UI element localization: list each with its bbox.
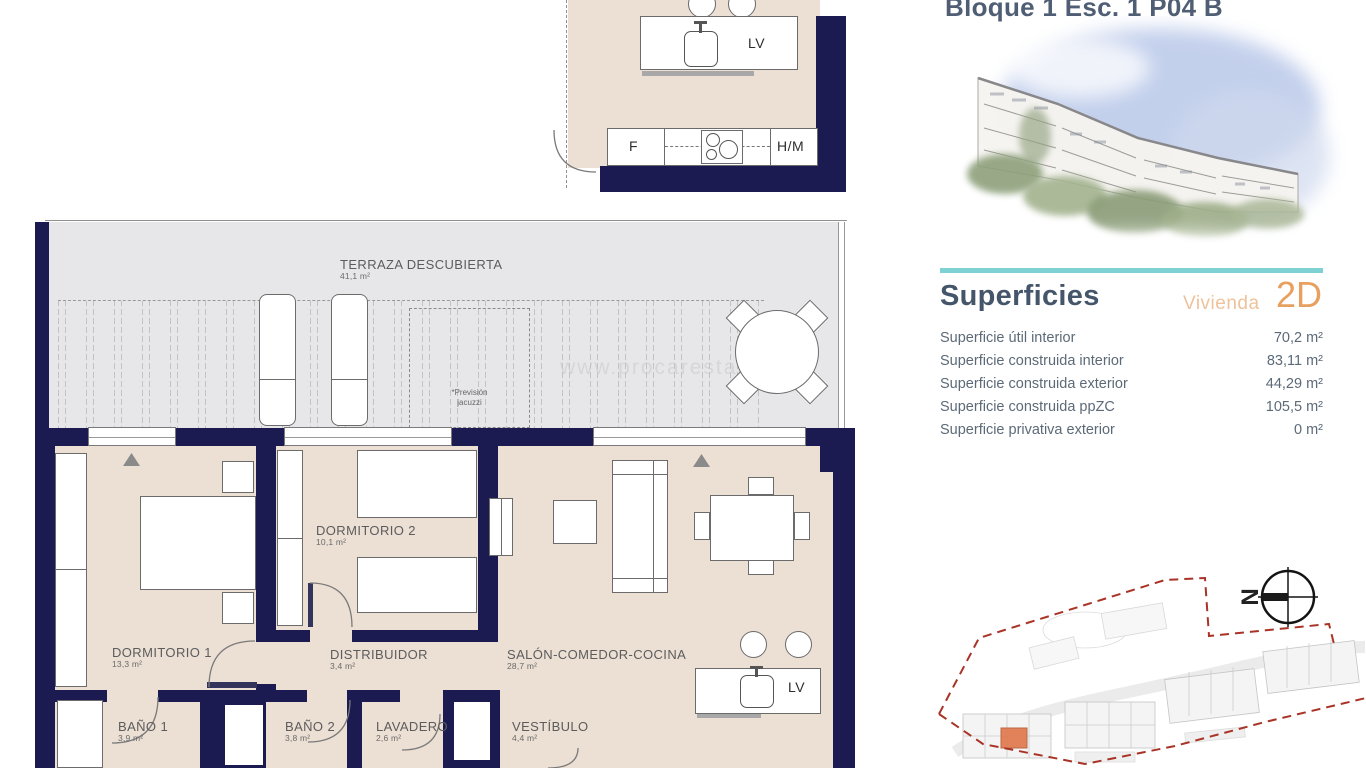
superficie-label: Superficie útil interior <box>940 330 1075 353</box>
door-arc-dormitorio1 <box>209 641 255 687</box>
room-name: DORMITORIO 2 <box>316 523 416 538</box>
room-name: LAVADERO <box>376 719 448 734</box>
room-area: 3,4 m² <box>330 662 428 671</box>
superficies-row: Superficie construida ppZC 105,5 m² <box>940 399 1323 422</box>
unit-type: 2D <box>1276 274 1322 316</box>
room-name: SALÓN-COMEDOR-COCINA <box>507 647 686 662</box>
superficies-row: Superficie privativa exterior 0 m² <box>940 422 1323 445</box>
teal-divider <box>940 268 1323 273</box>
room-name: DISTRIBUIDOR <box>330 647 428 662</box>
unit-type-label: Vivienda <box>1183 293 1260 315</box>
plan-sheet: LV F H/M www.procarestate *Previsión jac… <box>0 0 1366 768</box>
room-area: 10,1 m² <box>316 538 416 547</box>
highlighted-unit <box>1001 728 1027 748</box>
room-area: 13,3 m² <box>112 660 212 669</box>
room-label-vestibulo: VESTÍBULO 4,4 m² <box>512 720 589 744</box>
room-name: VESTÍBULO <box>512 719 589 734</box>
superficie-value: 0 m² <box>1294 422 1323 445</box>
cloud-wash <box>1010 38 1150 98</box>
superficie-label: Superficie construida interior <box>940 353 1124 376</box>
room-area: 3,9 m² <box>118 734 168 743</box>
superficie-label: Superficie construida ppZC <box>940 399 1115 422</box>
door-arc-kitchen <box>554 130 596 172</box>
room-name: BAÑO 2 <box>285 719 335 734</box>
room-area: 4,4 m² <box>512 734 589 743</box>
north-label: N <box>1237 588 1264 605</box>
room-label-dormitorio2: DORMITORIO 2 10,1 m² <box>316 524 416 548</box>
room-name: BAÑO 1 <box>118 719 168 734</box>
entry-triangle-icon <box>693 454 710 467</box>
superficie-value: 83,11 m² <box>1267 353 1323 376</box>
room-label-lavadero: LAVADERO 2,6 m² <box>376 720 448 744</box>
room-label-dormitorio1: DORMITORIO 1 13,3 m² <box>112 646 212 670</box>
superficies-row: Superficie construida exterior 44,29 m² <box>940 376 1323 399</box>
superficie-value: 44,29 m² <box>1266 376 1323 399</box>
superficies-table: Superficie útil interior 70,2 m² Superfi… <box>940 330 1323 445</box>
site-plan: N <box>935 552 1366 768</box>
room-label-bano2: BAÑO 2 3,8 m² <box>285 720 335 744</box>
room-area: 3,8 m² <box>285 734 335 743</box>
room-name: DORMITORIO 1 <box>112 645 212 660</box>
vegetation <box>1232 199 1304 229</box>
superficies-heading: Superficies <box>940 280 1100 313</box>
superficies-row: Superficie útil interior 70,2 m² <box>940 330 1323 353</box>
superficie-label: Superficie privativa exterior <box>940 422 1115 445</box>
superficie-label: Superficie construida exterior <box>940 376 1128 399</box>
room-area: 28,7 m² <box>507 662 686 671</box>
superficies-row: Superficie construida interior 83,11 m² <box>940 353 1323 376</box>
entry-triangle-icon <box>123 453 140 466</box>
compass-needle-icon <box>1262 593 1288 601</box>
door-arc-vestibulo <box>548 748 578 768</box>
superficie-value: 70,2 m² <box>1274 330 1323 353</box>
building-render <box>950 16 1346 266</box>
room-label-salon: SALÓN-COMEDOR-COCINA 28,7 m² <box>507 648 686 672</box>
superficie-value: 105,5 m² <box>1266 399 1323 422</box>
room-area: 2,6 m² <box>376 734 448 743</box>
door-arc-dormitorio2 <box>310 583 352 627</box>
fade <box>960 234 1340 266</box>
vegetation <box>1019 108 1051 164</box>
room-label-bano1: BAÑO 1 3,9 m² <box>118 720 168 744</box>
compass: N <box>1237 567 1318 627</box>
room-label-distribuidor: DISTRIBUIDOR 3,4 m² <box>330 648 428 672</box>
